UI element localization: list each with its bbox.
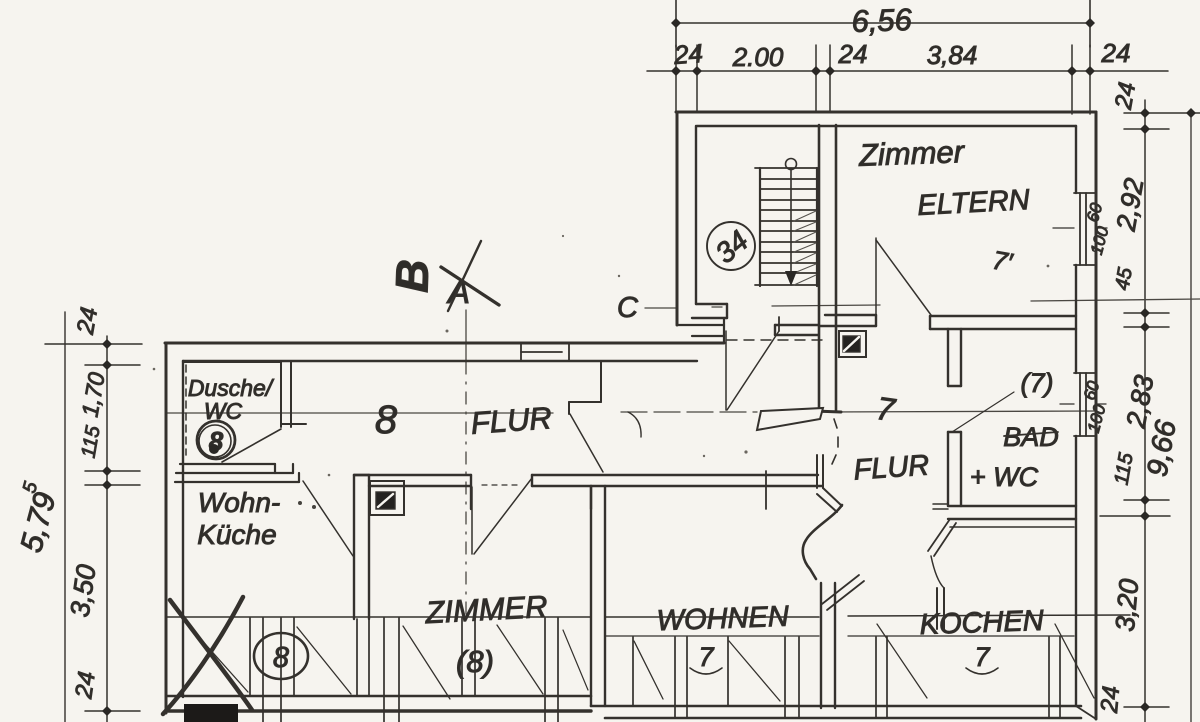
svg-text:7: 7 [698,642,714,672]
svg-text:24: 24 [672,38,704,70]
svg-text:+ WC: + WC [970,462,1039,492]
svg-text:C: C [617,292,639,324]
svg-text:ELTERN: ELTERN [917,184,1031,222]
svg-text:24: 24 [1096,685,1125,715]
svg-text:3,20: 3,20 [1110,578,1144,633]
svg-text:WOHNEN: WOHNEN [656,601,789,638]
svg-text:(7): (7) [1021,368,1054,398]
svg-text:B: B [385,258,438,293]
svg-text:24: 24 [838,39,868,69]
svg-text:24: 24 [70,670,101,701]
svg-text:2.00: 2.00 [732,42,784,72]
svg-text:WC: WC [204,398,243,424]
svg-text:Küche: Küche [197,519,276,550]
svg-text:3,84: 3,84 [927,40,978,70]
svg-text:BAD: BAD [1003,422,1059,452]
svg-text:24: 24 [1101,38,1131,68]
svg-text:8: 8 [273,642,289,674]
svg-text:Wohn-: Wohn- [198,487,280,518]
svg-text:24: 24 [72,305,103,337]
svg-text:8: 8 [375,398,398,442]
svg-text:7: 7 [974,642,990,672]
svg-text:6,56: 6,56 [851,2,913,39]
svg-text:ZIMMER: ZIMMER [423,589,548,630]
svg-text:FLUR: FLUR [852,449,930,486]
svg-text:Zimmer: Zimmer [857,134,966,173]
svg-text:FLUR: FLUR [470,400,553,441]
svg-text:24: 24 [1110,80,1141,112]
